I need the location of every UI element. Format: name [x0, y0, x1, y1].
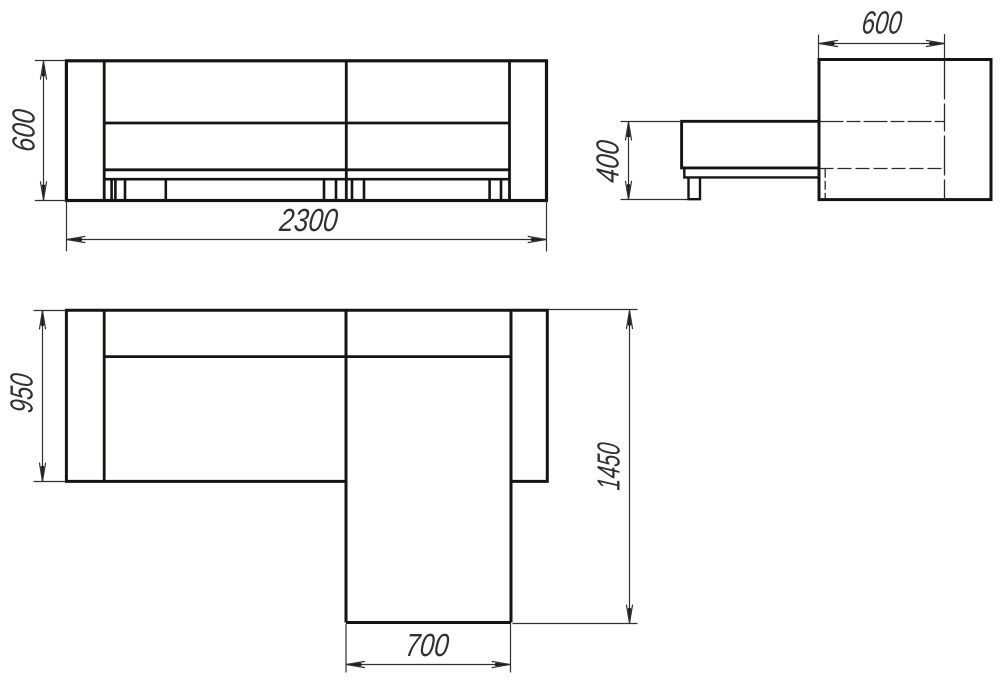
svg-text:400: 400	[590, 138, 626, 184]
svg-text:600: 600	[860, 4, 904, 40]
svg-text:700: 700	[404, 627, 451, 663]
svg-text:2300: 2300	[277, 202, 340, 238]
svg-text:1450: 1450	[590, 441, 626, 492]
svg-text:950: 950	[4, 372, 40, 415]
svg-text:600: 600	[5, 107, 41, 153]
